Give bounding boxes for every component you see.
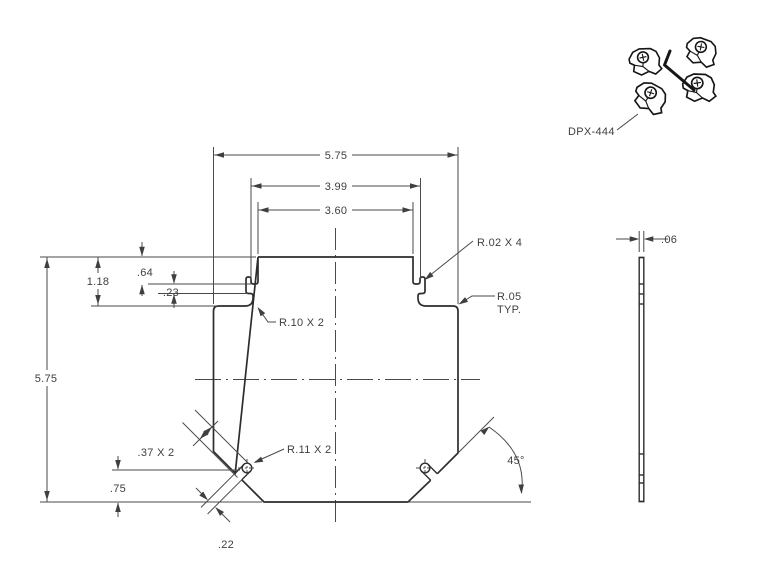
dim-slot-center-height: .75: [110, 456, 240, 517]
note-r02-label: R.02 X 4: [477, 237, 522, 249]
dim-chamfer-angle: 45°: [408, 417, 531, 502]
engineering-drawing-svg: 5.75 3.99 3.60 5.75: [0, 0, 760, 561]
dim-slot-length: .37 X 2: [138, 410, 248, 478]
dim-slot-length-label: .37 X 2: [138, 447, 175, 459]
clamp-part-2: [684, 36, 718, 69]
dim-slot-span-label: 3.99: [325, 181, 348, 193]
dim-shoulder-depth-label: 1.18: [87, 276, 110, 288]
clamp-part-1: [627, 45, 662, 79]
drawing-sheet: 5.75 3.99 3.60 5.75: [0, 0, 760, 561]
dim-tab-width-label: 3.60: [325, 205, 348, 217]
note-r11: R.11 X 2: [252, 444, 331, 466]
dim-slot-center-height-label: .75: [110, 483, 126, 495]
isometric-inset: DPX-444: [568, 36, 718, 138]
dim-thickness-label: .06: [661, 234, 677, 246]
dim-step-depth: .23: [158, 271, 248, 308]
note-r10-label: R.10 X 2: [279, 317, 324, 329]
slot-right: [416, 459, 437, 480]
side-view: .06: [616, 231, 677, 502]
note-r02: R.02 X 4: [423, 237, 522, 282]
dim-slit-depth: .64: [137, 242, 251, 296]
dim-slot-width-label: .22: [218, 539, 234, 551]
dim-thickness: .06: [616, 231, 677, 252]
front-view: 5.75 3.99 3.60 5.75: [35, 147, 531, 551]
dim-slit-depth-label: .64: [137, 267, 153, 279]
note-r05-label-1: R.05: [497, 291, 521, 303]
note-r05-label-2: TYP.: [497, 304, 521, 316]
note-r11-label: R.11 X 2: [287, 444, 331, 456]
dim-shoulder-depth: 1.18: [87, 257, 218, 306]
clamp-part-4: [682, 71, 717, 104]
dim-chamfer-angle-label: 45°: [507, 455, 525, 467]
dim-overall-height-label: 5.75: [35, 373, 58, 385]
dim-slot-width: .22: [196, 473, 242, 551]
side-view-plate: [639, 257, 645, 502]
dim-overall-width-label: 5.75: [325, 150, 348, 162]
part-label-callout: DPX-444: [568, 114, 638, 138]
note-r05: R.05 TYP.: [457, 291, 521, 316]
note-r10: R.10 X 2: [255, 305, 324, 329]
dim-step-depth-label: .23: [163, 287, 179, 299]
clamp-part-3: [631, 79, 670, 116]
slot-left: [235, 459, 256, 480]
part-label: DPX-444: [568, 126, 615, 138]
